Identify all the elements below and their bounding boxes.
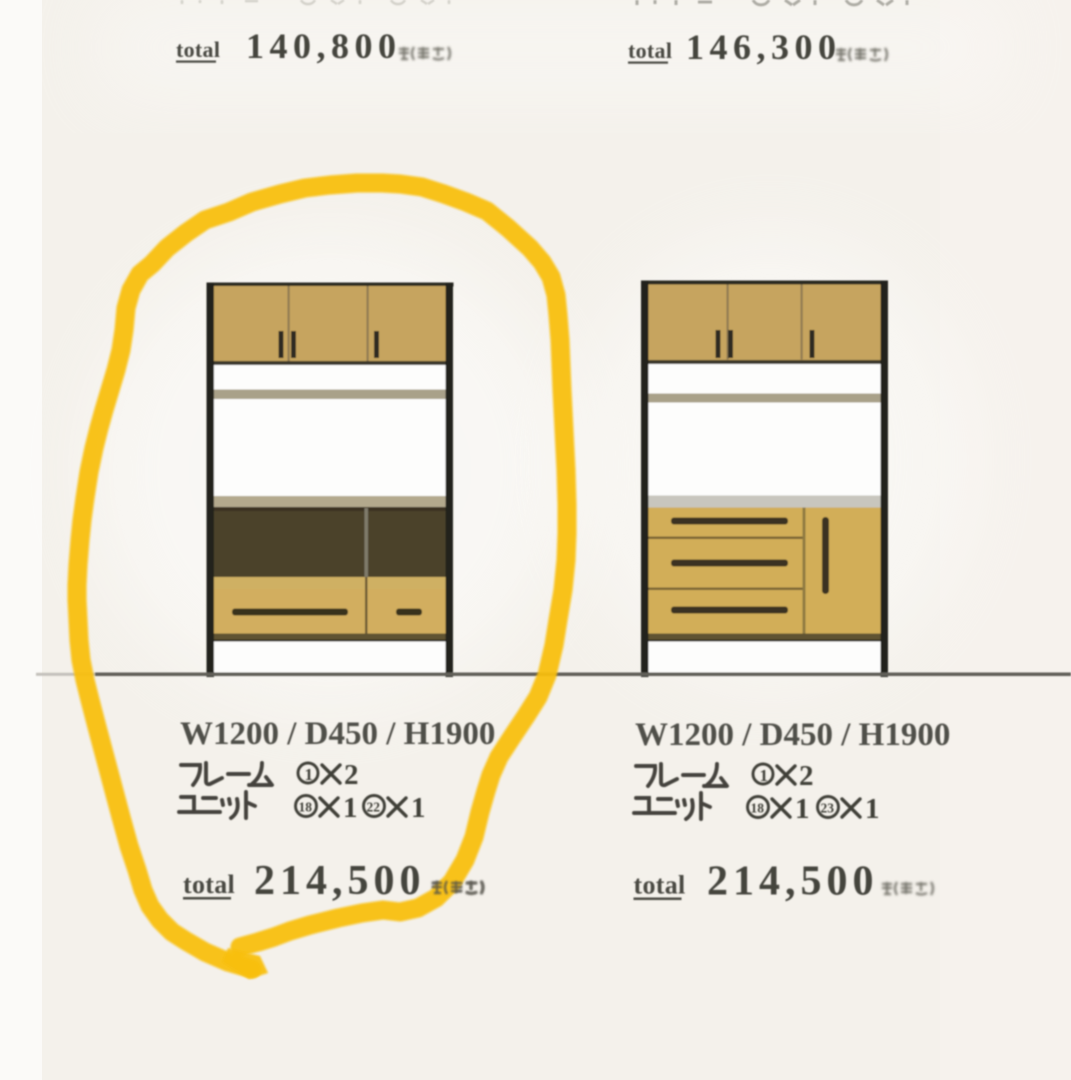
svg-text:146,300: 146,300 <box>686 27 842 67</box>
svg-text:22: 22 <box>367 800 381 815</box>
svg-text:2: 2 <box>799 760 814 792</box>
svg-text:W1200 / D450 / H1900: W1200 / D450 / H1900 <box>180 716 495 752</box>
svg-text:total: total <box>183 870 235 899</box>
svg-text:1: 1 <box>343 792 358 824</box>
svg-text:2: 2 <box>344 759 359 791</box>
svg-text:214,500: 214,500 <box>707 859 879 905</box>
svg-text:1: 1 <box>760 766 769 785</box>
svg-text:total: total <box>634 871 686 900</box>
svg-text:1: 1 <box>865 793 880 825</box>
svg-text:1: 1 <box>795 793 810 825</box>
svg-text:total: total <box>176 37 220 62</box>
svg-text:1: 1 <box>305 765 314 784</box>
svg-text:23: 23 <box>821 801 835 816</box>
svg-text:18: 18 <box>751 801 765 816</box>
svg-text:W1200 / D450 / H1900: W1200 / D450 / H1900 <box>635 717 950 753</box>
svg-text:18: 18 <box>299 800 313 815</box>
svg-text:1: 1 <box>411 792 426 824</box>
svg-text:140,800: 140,800 <box>246 26 402 66</box>
svg-text:total: total <box>628 38 672 63</box>
svg-text:214,500: 214,500 <box>254 858 426 904</box>
